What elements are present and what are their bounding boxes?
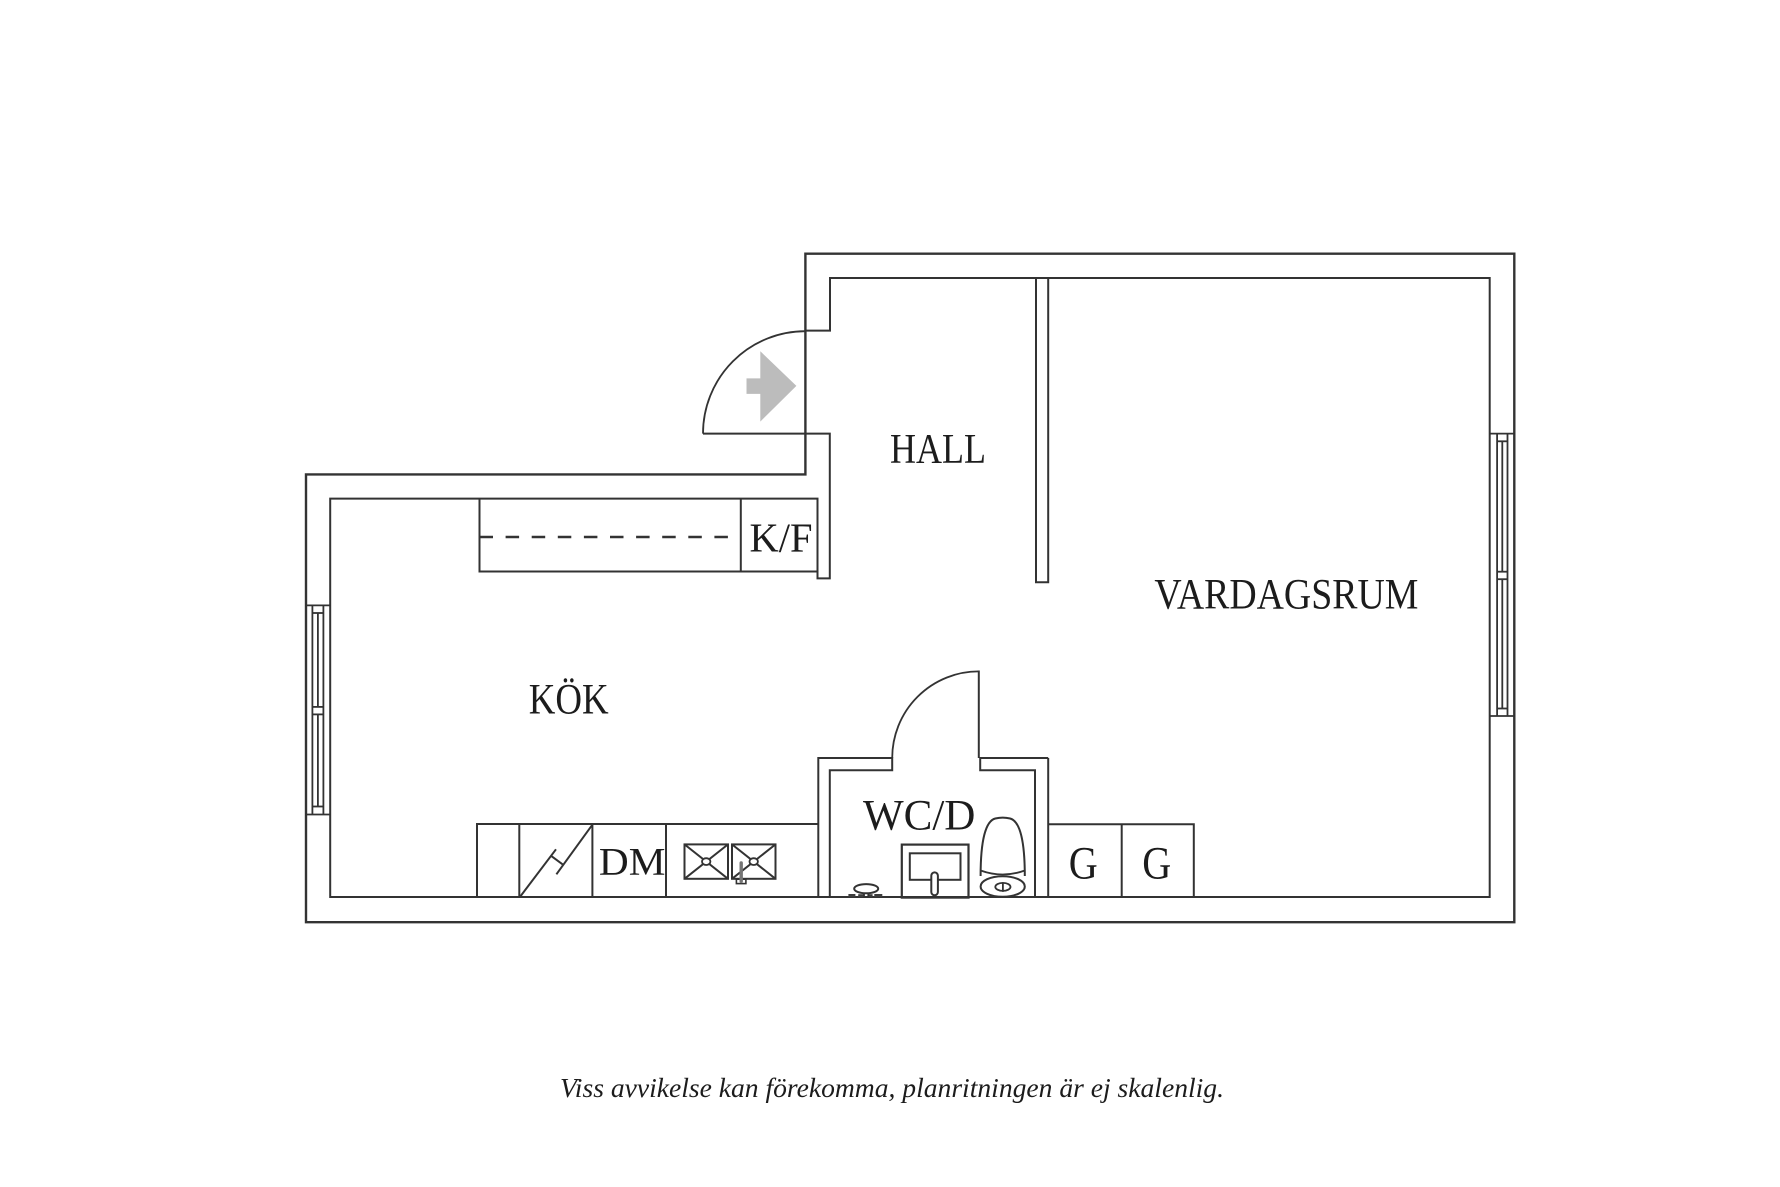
svg-text:WC/D: WC/D: [863, 792, 976, 839]
svg-text:G: G: [1069, 838, 1098, 889]
svg-text:G: G: [1142, 838, 1171, 889]
svg-text:DM: DM: [599, 841, 666, 884]
svg-text:HALL: HALL: [890, 427, 986, 473]
svg-text:KÖK: KÖK: [529, 677, 609, 724]
svg-text:K/F: K/F: [750, 514, 813, 560]
svg-text:Viss avvikelse kan förekomma,: Viss avvikelse kan förekomma, planritnin…: [560, 1072, 1224, 1103]
svg-text:VARDAGSRUM: VARDAGSRUM: [1154, 572, 1418, 619]
